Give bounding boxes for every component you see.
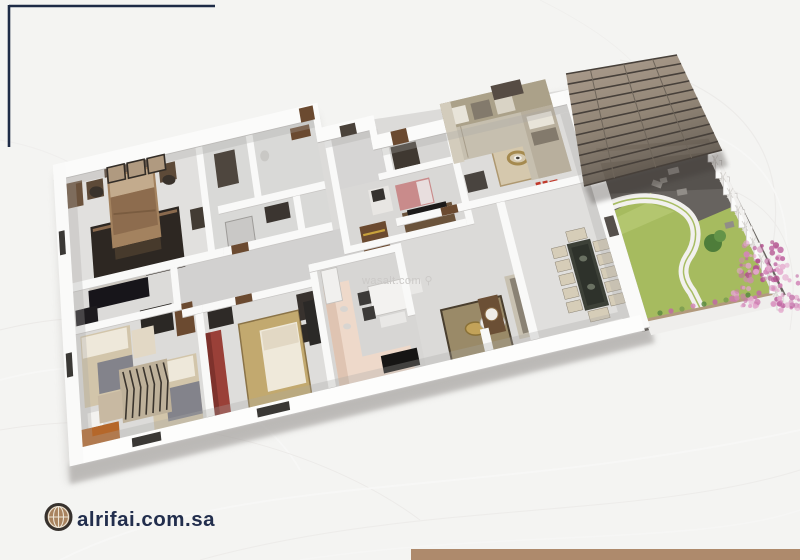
svg-text:alrifai.com.sa: alrifai.com.sa <box>77 508 215 531</box>
svg-text:wasalt.com ⚲: wasalt.com ⚲ <box>361 275 433 287</box>
